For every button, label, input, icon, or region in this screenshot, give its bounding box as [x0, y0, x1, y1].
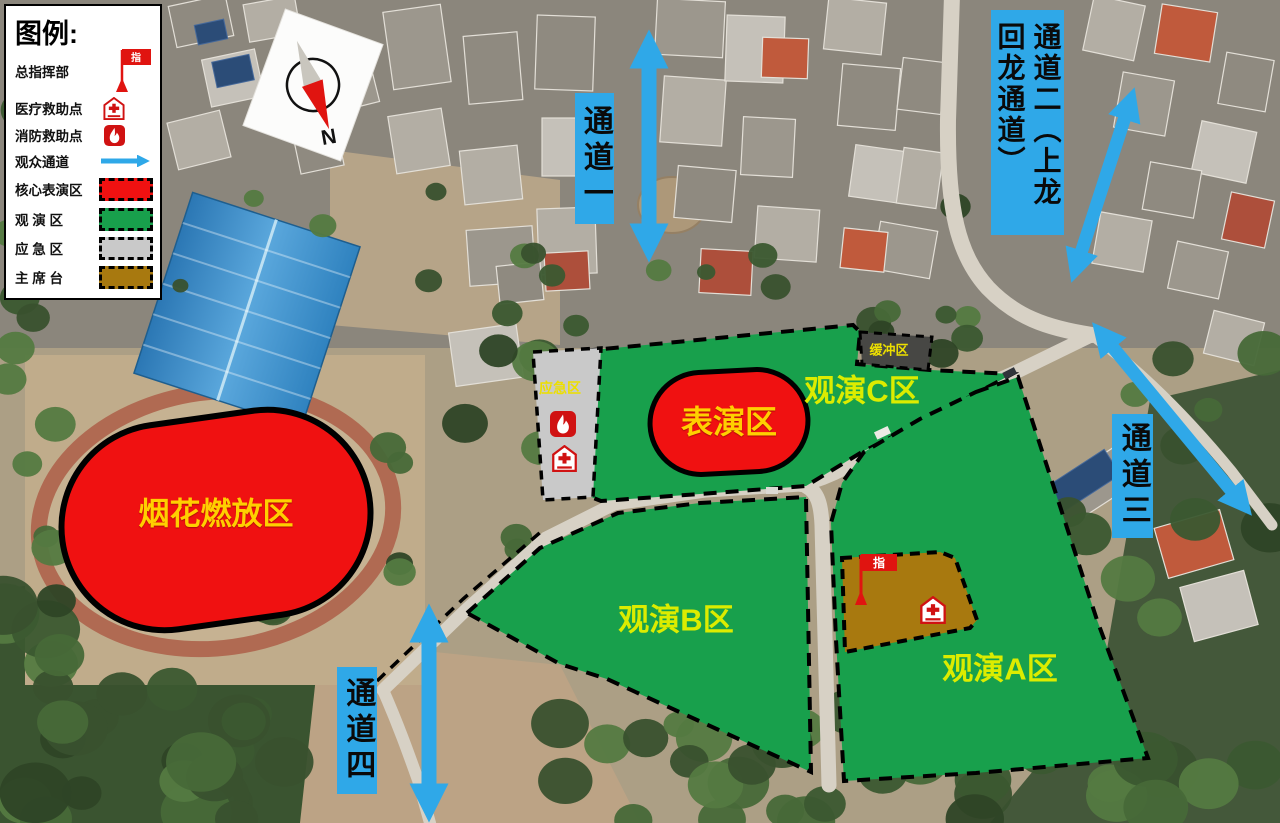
- tree: [761, 274, 791, 300]
- tree: [623, 719, 668, 757]
- svg-text:指: 指: [873, 555, 885, 570]
- building: [1168, 241, 1229, 299]
- tree: [1170, 498, 1220, 541]
- tree: [147, 668, 198, 711]
- channel-3-label: 通道三: [1112, 414, 1153, 538]
- channel-4-text: 通道四: [340, 677, 375, 785]
- vehicle: [766, 487, 778, 494]
- channel-3-text: 通道三: [1115, 422, 1150, 530]
- legend-row-command: 总指挥部 指: [15, 50, 153, 92]
- channel-1-label: 通道一: [575, 93, 614, 224]
- building: [1142, 162, 1202, 218]
- building: [837, 64, 900, 131]
- legend-swatch-gray: [99, 237, 153, 260]
- building: [1218, 52, 1274, 112]
- building: [897, 58, 947, 115]
- tree: [255, 737, 313, 787]
- emergency-zone-label: 应急区: [539, 381, 581, 395]
- tree: [874, 300, 901, 323]
- tree: [383, 558, 415, 586]
- tree: [96, 672, 147, 715]
- fire-rescue-icon: [104, 125, 125, 146]
- medical-aid-icon: [919, 596, 947, 624]
- legend-row-core-performance: 核心表演区: [15, 176, 153, 202]
- channel-1-text: 通道一: [577, 105, 612, 213]
- tree: [415, 269, 442, 292]
- building: [388, 108, 450, 174]
- tree: [12, 451, 42, 476]
- command-flag-icon: 指: [853, 551, 899, 609]
- building: [1154, 4, 1217, 62]
- legend-title: 图例:: [15, 12, 78, 51]
- tree: [748, 243, 777, 268]
- building: [761, 37, 808, 79]
- building: [741, 117, 796, 178]
- building: [1092, 212, 1152, 272]
- building: [896, 147, 943, 208]
- legend-row-fire: 消防救助点: [15, 123, 153, 147]
- viewing-a-label: 观演A区: [942, 654, 1057, 685]
- tree: [1137, 598, 1182, 636]
- legend-row-channel: 观众通道: [15, 150, 153, 172]
- building: [823, 0, 886, 55]
- tree: [35, 407, 76, 442]
- building: [459, 145, 522, 205]
- tree: [35, 634, 85, 676]
- tree: [1152, 341, 1193, 376]
- tree: [563, 315, 589, 337]
- legend-row-medical: 医疗救助点: [15, 96, 153, 120]
- fire-rescue-icon: [550, 411, 576, 437]
- tree: [531, 699, 589, 748]
- legend-label: 观 演 区: [15, 209, 63, 229]
- tree: [17, 304, 50, 332]
- fireworks-event-site-map: N 烟花燃放区 表演区 观演C区 观演B区 观演A区 应急区 缓冲区 指 通道一…: [0, 0, 1280, 823]
- building: [1221, 192, 1274, 248]
- legend-row-emergency: 应 急 区: [15, 235, 153, 261]
- channel-2-text: 通道二（上龙回龙通道）: [992, 22, 1064, 224]
- buffer-zone-label: 缓冲区: [869, 344, 908, 357]
- medical-aid-icon: [551, 445, 578, 472]
- legend-label: 核心表演区: [15, 179, 83, 199]
- tree: [37, 700, 88, 743]
- tree: [1194, 398, 1222, 422]
- command-flag-icon: 指: [115, 48, 153, 94]
- building: [655, 0, 726, 58]
- channel-2-label: 通道二（上龙回龙通道）: [991, 10, 1064, 235]
- tree: [166, 732, 236, 792]
- channel-4-label: 通道四: [337, 667, 377, 794]
- legend-row-rostrum: 主 席 台: [15, 264, 153, 290]
- building: [1083, 0, 1146, 61]
- tree: [521, 243, 546, 264]
- tree: [1179, 758, 1239, 809]
- legend-label: 应 急 区: [15, 238, 63, 258]
- tree: [804, 786, 846, 822]
- building: [660, 76, 726, 146]
- viewing-c-label: 观演C区: [804, 376, 919, 407]
- legend-label: 消防救助点: [15, 125, 83, 145]
- tree: [584, 724, 630, 763]
- tree: [426, 183, 447, 201]
- legend-swatch-green: [99, 208, 153, 231]
- tree: [0, 763, 71, 823]
- building: [463, 32, 523, 104]
- tree: [309, 214, 336, 237]
- tree: [936, 306, 957, 324]
- tree: [222, 703, 266, 741]
- tree: [1101, 556, 1155, 602]
- tree: [442, 404, 488, 443]
- tree: [955, 306, 981, 328]
- fireworks-zone-label: 烟花燃放区: [139, 499, 294, 530]
- legend-label: 观众通道: [15, 151, 69, 171]
- legend-swatch-brown: [99, 266, 153, 289]
- building: [840, 228, 888, 272]
- tree: [37, 584, 76, 617]
- building: [496, 262, 544, 304]
- legend-swatch-red: [99, 178, 153, 201]
- tree: [387, 452, 413, 474]
- tree: [538, 758, 592, 804]
- performance-zone-label: 表演区: [681, 406, 777, 438]
- svg-text:指: 指: [131, 51, 141, 64]
- building: [674, 166, 736, 223]
- building: [383, 4, 451, 89]
- tree: [244, 190, 264, 207]
- blue-arrow-icon: [99, 155, 153, 167]
- medical-aid-icon: [103, 97, 125, 120]
- legend-label: 医疗救助点: [15, 98, 83, 118]
- tree: [539, 264, 565, 286]
- legend-row-viewing: 观 演 区: [15, 206, 153, 232]
- tree: [172, 279, 188, 293]
- legend-label: 主 席 台: [15, 267, 63, 287]
- tree: [697, 264, 715, 280]
- tree: [492, 300, 523, 326]
- tree: [479, 334, 518, 367]
- tree: [646, 259, 672, 281]
- viewing-b-label: 观演B区: [618, 605, 733, 636]
- legend-label: 总指挥部: [15, 61, 69, 81]
- legend-panel: 图例: 总指挥部 指 医疗救助点 消防救助点: [4, 4, 162, 300]
- building: [535, 15, 596, 91]
- aerial-map-canvas: N: [0, 0, 1280, 823]
